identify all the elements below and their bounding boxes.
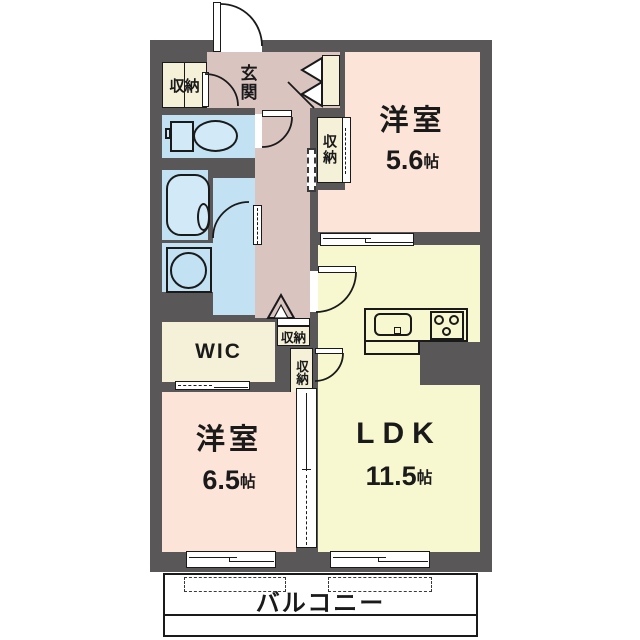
balcony-label: バルコニー xyxy=(163,586,478,614)
ldk-window xyxy=(330,551,430,568)
wic-sliding-door xyxy=(175,381,250,390)
bedroom2-size: 6.5帖 xyxy=(162,462,296,498)
bedroom1-ldk-sliding-door xyxy=(320,233,414,246)
entrance-opening xyxy=(221,40,262,52)
entrance-hall-floor xyxy=(207,52,340,108)
floor-plan: 収納 玄関 収納 洋室 5.6帖 収納 収納 WIC 洋室 6.5帖 LDK 1… xyxy=(0,0,640,640)
stove-burner xyxy=(442,327,451,336)
ldk-floor xyxy=(318,245,480,552)
toilet-opening xyxy=(255,114,262,148)
kitchen-counter-return xyxy=(364,342,420,355)
ldk-label: LDK xyxy=(318,415,480,453)
entrance-door-leaf xyxy=(213,2,221,52)
entrance-closet-label: 収納 xyxy=(162,62,207,108)
bedroom2-window xyxy=(186,551,276,568)
washroom xyxy=(213,178,255,315)
entrance-label: 玄関 xyxy=(236,58,258,108)
toilet-bowl-icon xyxy=(193,120,238,152)
toilet-handle xyxy=(165,128,171,139)
bathtub-counter xyxy=(197,203,210,231)
pipe-space xyxy=(420,342,480,385)
stove-burner xyxy=(449,315,459,325)
bedroom2-ldk-sliding-door xyxy=(296,388,317,548)
bedroom1-label: 洋室 xyxy=(345,100,480,136)
bedroom1-closet-label: 収納 xyxy=(318,120,342,180)
toilet-tank-icon xyxy=(170,121,194,152)
kitchen-sink-drain xyxy=(394,327,401,334)
toilet-door-leaf xyxy=(262,110,292,117)
ldk-storage-door-leaf xyxy=(315,348,343,354)
washbasin-bowl-icon xyxy=(170,252,207,289)
ldk-door-opening xyxy=(310,271,318,312)
hall-chevron-closet xyxy=(322,55,340,106)
ldk-storage-label: 収納 xyxy=(291,351,312,393)
kitchen-sink-icon xyxy=(374,313,412,336)
hall-shelf xyxy=(307,148,316,192)
bedroom1-floor xyxy=(345,52,480,232)
washroom-sliding-door xyxy=(253,205,262,245)
hallway-floor xyxy=(255,108,310,318)
hall-storage-label: 収納 xyxy=(277,328,310,344)
bedroom1-nook xyxy=(318,190,345,232)
bedroom2-label: 洋室 xyxy=(162,418,296,456)
hall-storage-door xyxy=(277,318,310,326)
ldk-size: 11.5帖 xyxy=(318,458,480,494)
ldk-door-leaf xyxy=(318,266,356,273)
wic-label: WIC xyxy=(162,338,275,366)
bedroom1-size: 5.6帖 xyxy=(345,143,480,177)
stove-burner xyxy=(434,315,444,325)
